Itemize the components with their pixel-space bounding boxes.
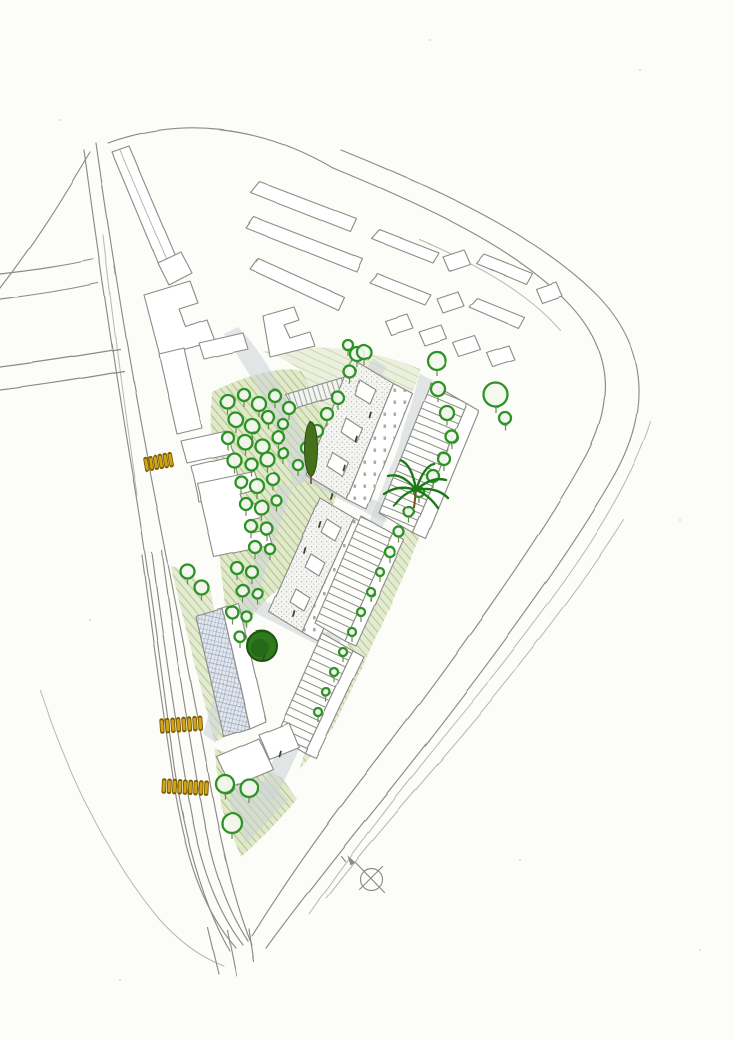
- tree-canopy: [252, 397, 266, 411]
- tree-canopy: [242, 612, 252, 622]
- crossing-tick: [189, 720, 190, 729]
- tree-canopy: [322, 688, 330, 696]
- tree-canopy: [253, 589, 263, 599]
- tree-canopy: [249, 541, 261, 553]
- crossing-tick: [200, 719, 201, 728]
- crossing-tick: [160, 457, 162, 466]
- crossing-tick: [165, 456, 167, 465]
- tree-canopy: [221, 395, 235, 409]
- tree-canopy: [237, 585, 249, 597]
- tree-canopy: [227, 453, 241, 467]
- tree-canopy: [440, 406, 454, 420]
- cypress-canopy: [305, 422, 318, 476]
- tree-canopy: [222, 432, 234, 444]
- crossing-tick: [178, 720, 179, 729]
- tree-canopy: [499, 412, 511, 424]
- crossing-tick: [162, 722, 163, 731]
- dark-tree: [247, 631, 277, 661]
- tree-canopy: [240, 498, 252, 510]
- pedestrian-crossing-marking: [164, 781, 207, 794]
- tree-canopy: [357, 345, 371, 359]
- tree-canopy: [428, 352, 446, 370]
- tree-canopy: [321, 408, 333, 420]
- tree-canopy: [394, 527, 404, 537]
- tree-canopy: [431, 382, 445, 396]
- tree-canopy: [255, 501, 269, 515]
- tree-canopy: [231, 562, 243, 574]
- tree-canopy: [261, 523, 273, 535]
- tree-canopy: [278, 419, 288, 429]
- site-plan-sketch: [0, 0, 735, 1040]
- tree-canopy: [272, 431, 284, 443]
- tree-canopy: [235, 632, 245, 642]
- tree-canopy: [262, 411, 274, 423]
- tree-canopy: [181, 565, 195, 579]
- tree-canopy: [344, 366, 356, 378]
- tree-canopy: [245, 520, 257, 532]
- crossing-tick: [170, 455, 172, 464]
- tree-canopy: [269, 390, 281, 402]
- tree-canopy: [227, 607, 239, 619]
- tree-canopy: [314, 708, 322, 716]
- sketch-canvas: [0, 0, 735, 1040]
- tree-canopy: [216, 775, 234, 793]
- tree-canopy: [229, 413, 243, 427]
- tree-canopy: [238, 389, 250, 401]
- crossing-tick: [150, 459, 152, 468]
- tree-canopy: [446, 431, 458, 443]
- crossing-tick: [167, 721, 168, 730]
- tree-canopy: [339, 648, 347, 656]
- tree-canopy: [357, 608, 365, 616]
- crossing-tick: [195, 719, 196, 728]
- tree-canopy: [278, 448, 288, 458]
- tree-canopy: [250, 479, 264, 493]
- tree-canopy: [267, 473, 279, 485]
- tree-canopy: [332, 392, 344, 404]
- crossing-tick: [155, 458, 157, 467]
- tree-canopy: [385, 547, 395, 557]
- tree-canopy: [238, 435, 252, 449]
- dark-tree-shade: [251, 639, 269, 657]
- tree-canopy: [195, 581, 209, 595]
- tree-canopy: [348, 628, 356, 636]
- crossing-tick: [184, 720, 185, 729]
- tree-canopy: [235, 476, 247, 488]
- tree-canopy: [330, 668, 338, 676]
- crossing-tick: [173, 721, 174, 730]
- tree-canopy: [245, 419, 259, 433]
- tree-canopy: [376, 568, 384, 576]
- tree-canopy: [293, 460, 303, 470]
- tree-canopy: [404, 507, 414, 517]
- tree-canopy: [484, 383, 508, 407]
- tree-canopy: [438, 453, 450, 465]
- tree-canopy: [265, 544, 275, 554]
- tree-canopy: [260, 452, 274, 466]
- tree-canopy: [246, 566, 258, 578]
- tree-canopy: [283, 402, 295, 414]
- tree-canopy: [367, 588, 375, 596]
- tree-canopy: [343, 340, 353, 350]
- tree-canopy: [222, 813, 242, 833]
- tree-canopy: [240, 779, 258, 797]
- crossing-tick: [145, 460, 147, 469]
- tree-canopy: [272, 496, 282, 506]
- tree-canopy: [245, 458, 257, 470]
